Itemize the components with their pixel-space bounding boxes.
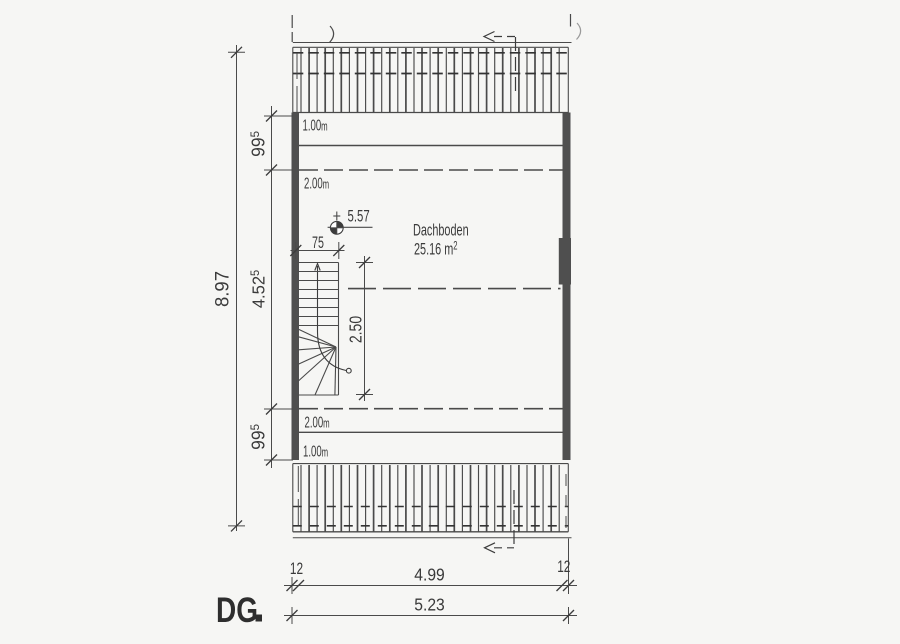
svg-text:25.16 m2: 25.16 m2: [414, 240, 458, 259]
svg-text:2.00m: 2.00m: [305, 413, 330, 431]
svg-text:2.00m: 2.00m: [304, 174, 329, 192]
svg-text:12: 12: [557, 558, 570, 576]
svg-text:1.00m: 1.00m: [303, 116, 328, 134]
svg-text:4.99: 4.99: [414, 564, 444, 584]
svg-text:75: 75: [312, 234, 324, 253]
svg-text:8.97: 8.97: [212, 271, 234, 307]
svg-text:2.50: 2.50: [346, 316, 366, 343]
svg-text:12: 12: [290, 560, 303, 578]
svg-text:Dachboden: Dachboden: [413, 221, 469, 240]
svg-text:DG: DG: [216, 590, 258, 630]
svg-text:1.00m: 1.00m: [303, 442, 328, 460]
svg-text:5.57: 5.57: [348, 207, 370, 226]
svg-text:5.23: 5.23: [414, 594, 444, 614]
